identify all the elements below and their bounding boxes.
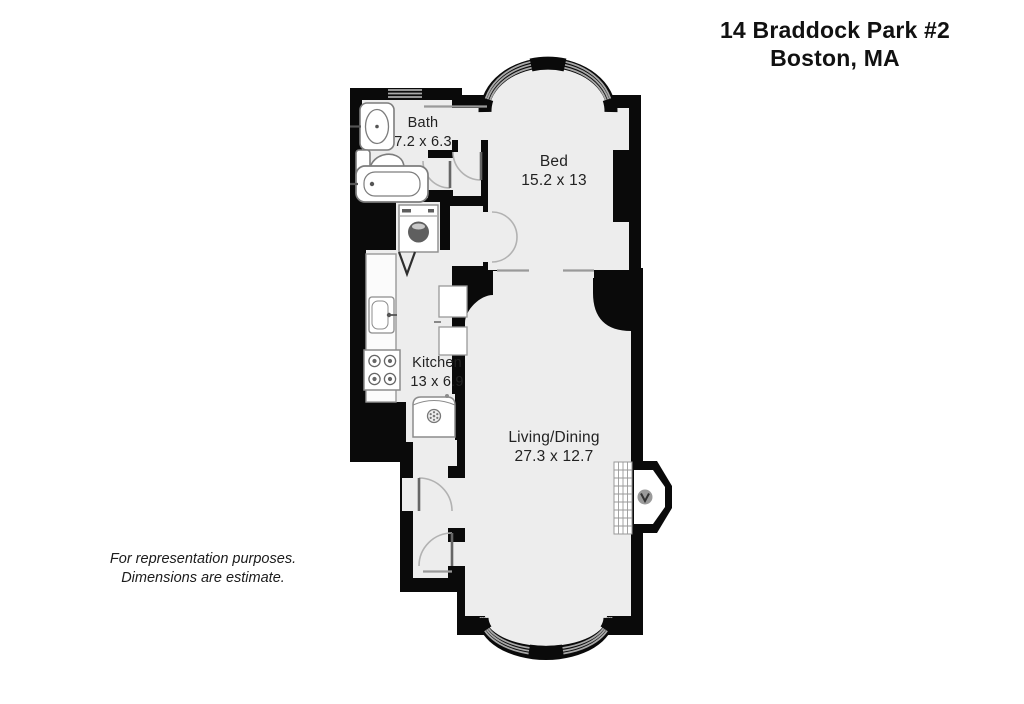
living-dining-dims: 27.3 x 12.7 xyxy=(508,447,599,466)
kitchen-name: Kitchen xyxy=(410,354,463,373)
floor-plan-page: 14 Braddock Park #2 Boston, MA Bath 7.2 … xyxy=(0,0,1024,704)
closet-floor xyxy=(450,206,483,266)
stove-icon xyxy=(364,350,400,390)
kitchen-sink-icon xyxy=(369,297,397,333)
bed-name: Bed xyxy=(521,152,587,171)
kitchen-dims: 13 x 6.9 xyxy=(410,373,463,392)
bed-dims: 15.2 x 13 xyxy=(521,171,587,190)
bath-dims: 7.2 x 6.3 xyxy=(394,133,451,152)
title-address: 14 Braddock Park #2 xyxy=(690,16,980,44)
bathtub-icon xyxy=(350,166,428,202)
bed-alcove-floor xyxy=(452,108,488,140)
floor-plan xyxy=(0,0,1024,704)
kitchen-label: Kitchen 13 x 6.9 xyxy=(410,354,463,392)
washer-icon xyxy=(399,205,438,252)
refrigerator-icon xyxy=(413,394,455,437)
disclaimer: For representation purposes. Dimensions … xyxy=(78,550,328,588)
disclaimer-line2: Dimensions are estimate. xyxy=(78,569,328,588)
bath-label: Bath 7.2 x 6.3 xyxy=(394,114,451,152)
bed-pilaster xyxy=(613,150,629,222)
bath-name: Bath xyxy=(394,114,451,133)
living-dining-label: Living/Dining 27.3 x 12.7 xyxy=(508,428,599,466)
bed-label: Bed 15.2 x 13 xyxy=(521,152,587,190)
page-title: 14 Braddock Park #2 Boston, MA xyxy=(690,16,980,72)
hall-floor xyxy=(453,152,481,196)
title-city: Boston, MA xyxy=(690,44,980,72)
disclaimer-line1: For representation purposes. xyxy=(78,550,328,569)
living-dining-name: Living/Dining xyxy=(508,428,599,447)
